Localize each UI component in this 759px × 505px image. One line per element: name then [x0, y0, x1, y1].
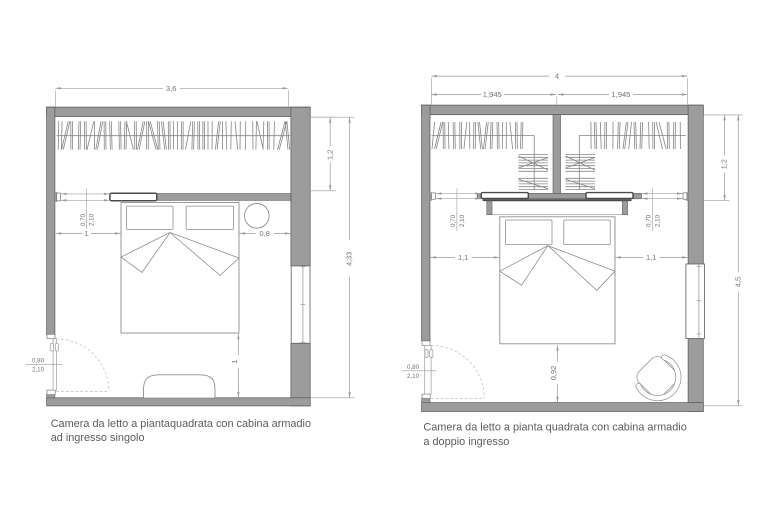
svg-text:1: 1 — [84, 229, 88, 238]
svg-text:0,92: 0,92 — [549, 366, 558, 380]
svg-text:Camera da letto a piantaquadra: Camera da letto a piantaquadrata con cab… — [51, 418, 311, 430]
svg-text:1,945: 1,945 — [483, 90, 502, 99]
svg-text:0,70: 0,70 — [450, 214, 457, 227]
svg-text:4,33: 4,33 — [345, 252, 354, 266]
svg-text:3,6: 3,6 — [166, 84, 177, 93]
svg-text:1,2: 1,2 — [720, 159, 729, 169]
svg-text:2,10: 2,10 — [89, 213, 96, 226]
svg-text:0,80: 0,80 — [32, 358, 45, 365]
svg-text:Camera da letto a pianta quadr: Camera da letto a pianta quadrata con ca… — [423, 422, 686, 434]
svg-text:2,10: 2,10 — [32, 367, 45, 374]
svg-text:ad ingresso singolo: ad ingresso singolo — [51, 432, 145, 444]
svg-text:1,2: 1,2 — [325, 150, 334, 160]
svg-text:0,8: 0,8 — [260, 229, 270, 238]
svg-text:2,10: 2,10 — [459, 214, 466, 227]
svg-text:0,80: 0,80 — [407, 364, 420, 371]
svg-text:1,1: 1,1 — [458, 253, 468, 262]
svg-text:1,945: 1,945 — [611, 90, 630, 99]
svg-text:0,70: 0,70 — [80, 213, 87, 226]
svg-text:4,5: 4,5 — [733, 277, 742, 287]
svg-text:1,1: 1,1 — [646, 253, 656, 262]
svg-text:a doppio ingresso: a doppio ingresso — [423, 436, 509, 448]
svg-text:4: 4 — [555, 72, 559, 81]
svg-text:2,10: 2,10 — [654, 214, 661, 227]
svg-text:0,70: 0,70 — [646, 214, 653, 227]
svg-text:1: 1 — [230, 359, 239, 363]
svg-text:2,10: 2,10 — [407, 373, 420, 380]
